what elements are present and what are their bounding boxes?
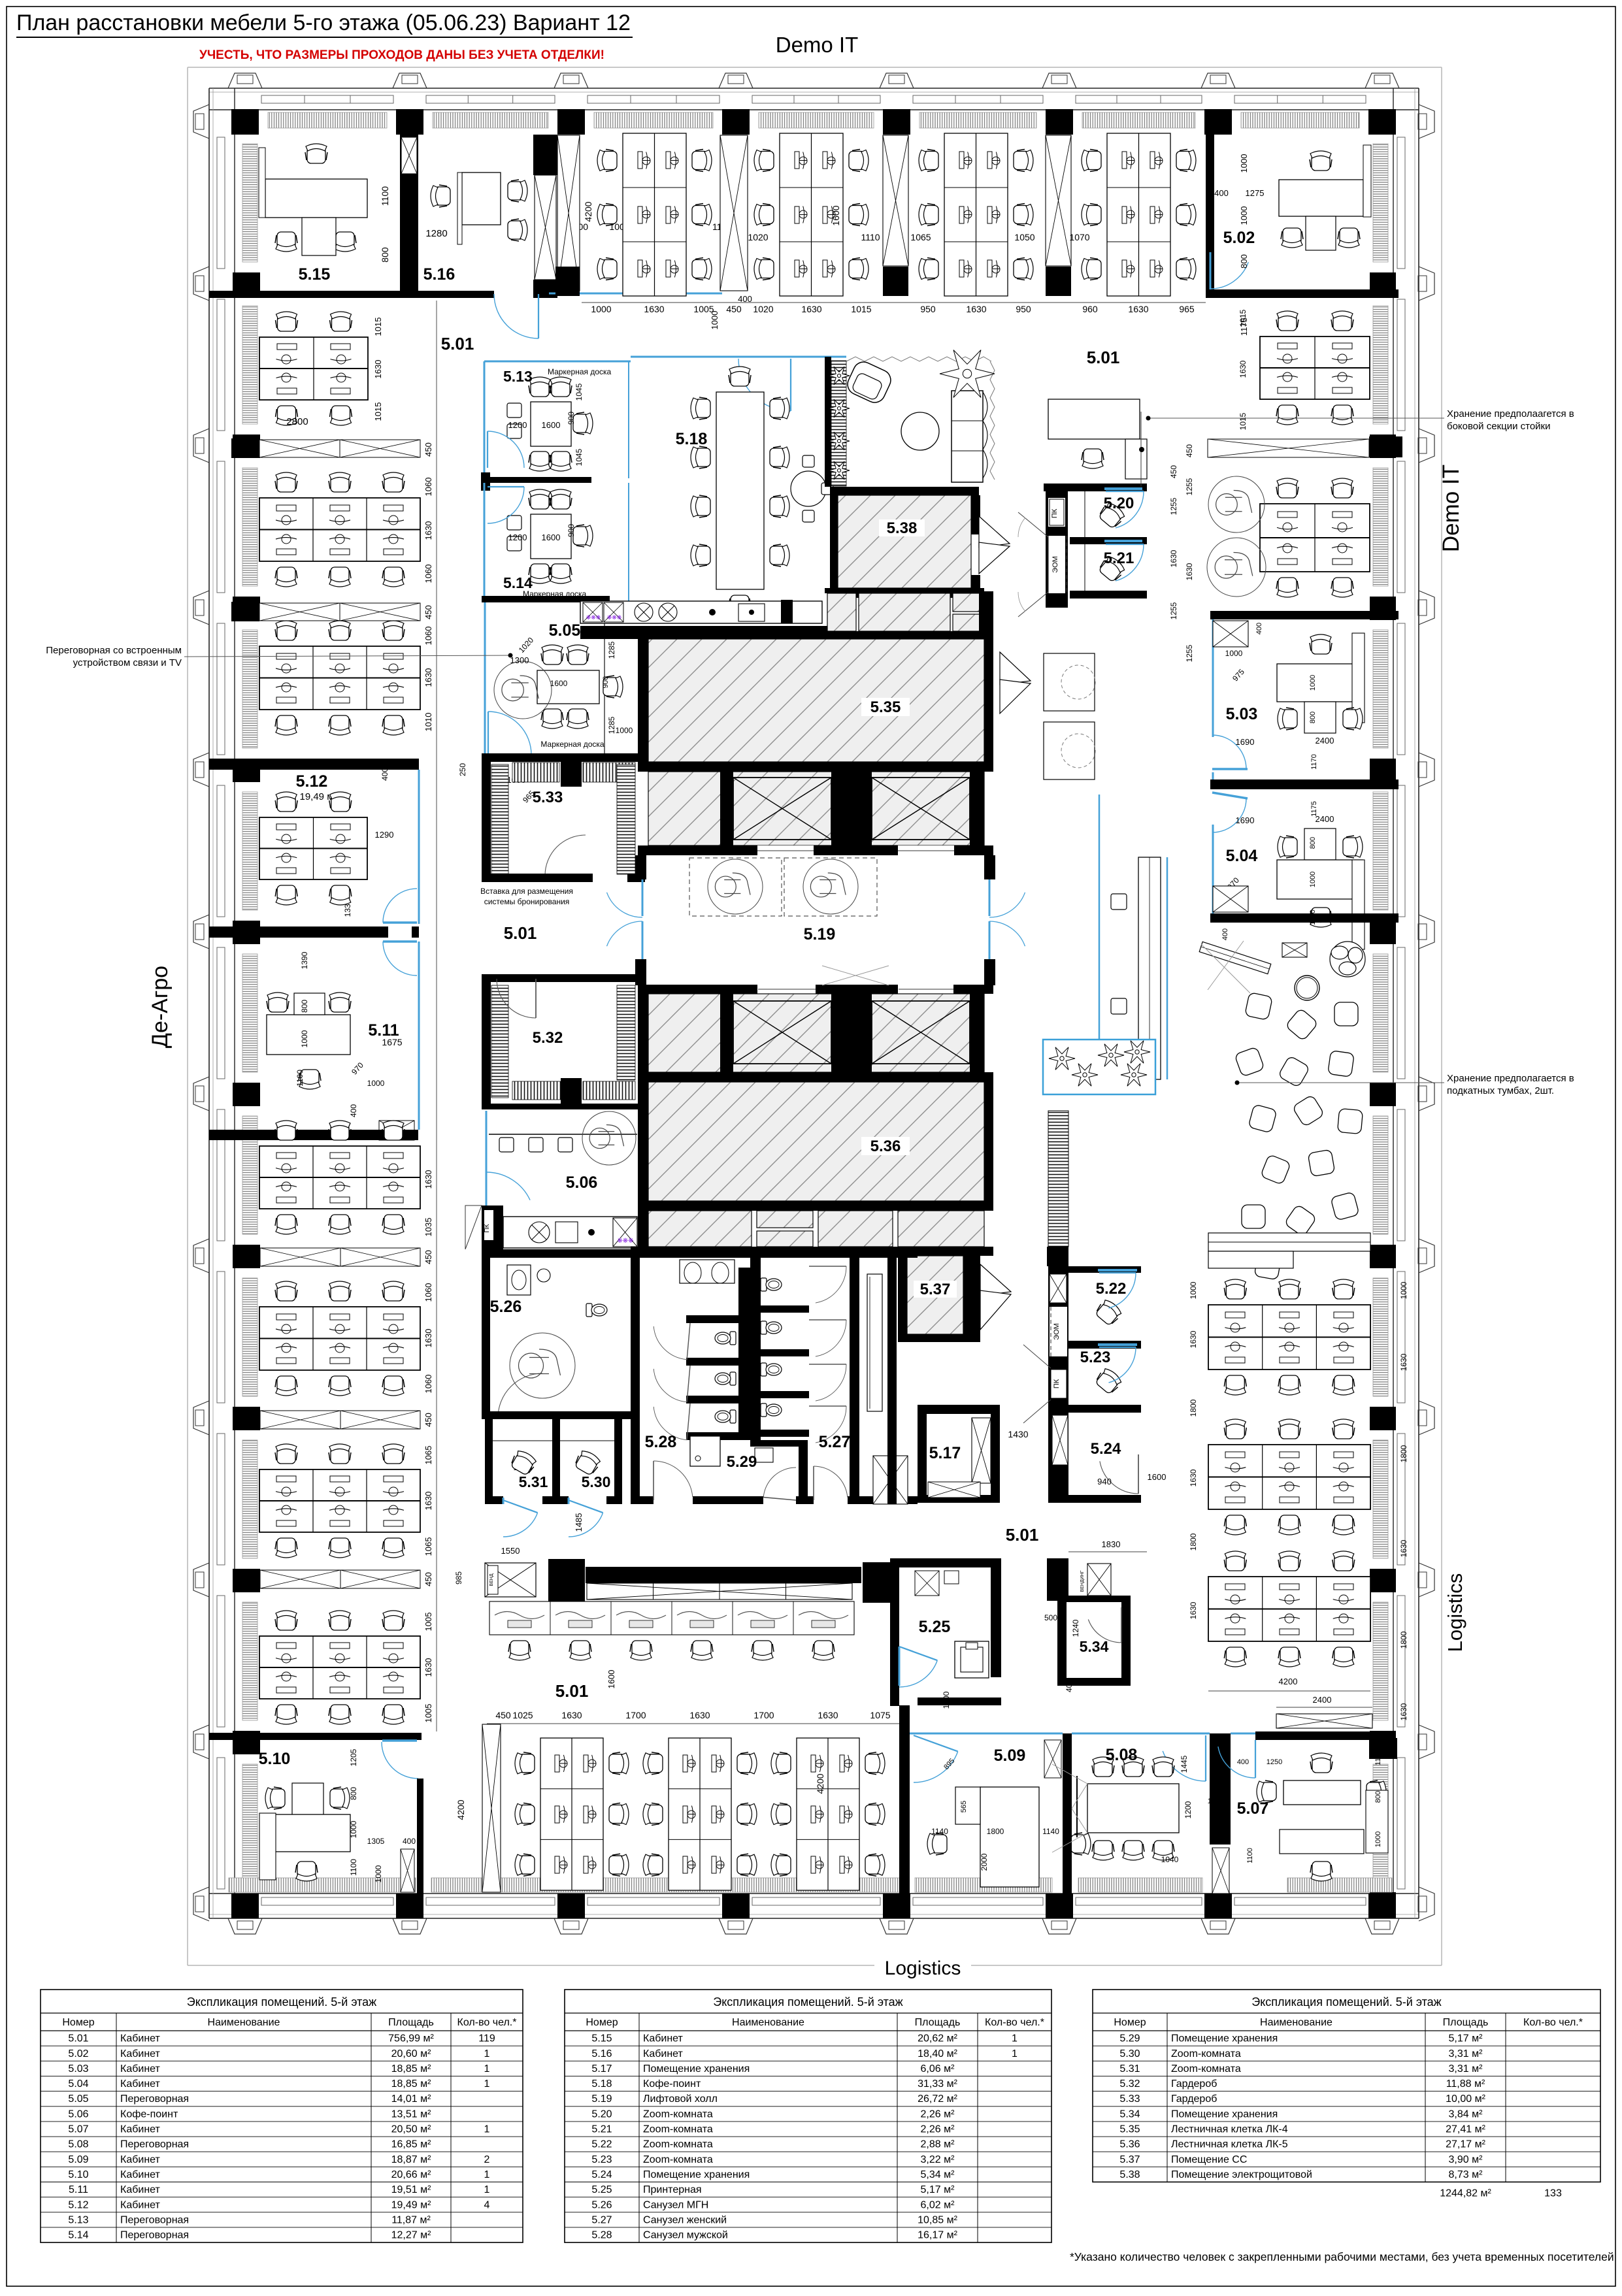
svg-text:1015: 1015 (1238, 309, 1248, 327)
svg-text:1800: 1800 (1399, 1445, 1408, 1462)
svg-text:5.04: 5.04 (68, 2078, 88, 2090)
svg-text:3,31 м²: 3,31 м² (1449, 2063, 1483, 2075)
svg-text:1630: 1630 (1399, 1353, 1408, 1371)
svg-text:1000: 1000 (1309, 675, 1317, 691)
svg-text:400: 400 (1065, 1679, 1074, 1692)
svg-text:1630: 1630 (1399, 1539, 1408, 1557)
svg-text:Кабинет: Кабинет (120, 2033, 161, 2044)
svg-text:Кабинет: Кабинет (120, 2048, 161, 2059)
svg-text:5.02: 5.02 (1223, 229, 1255, 247)
svg-text:Наименование: Наименование (208, 2017, 280, 2028)
svg-text:250: 250 (458, 763, 467, 776)
svg-text:5.30: 5.30 (1119, 2048, 1140, 2059)
svg-text:1015: 1015 (373, 318, 383, 336)
svg-text:950: 950 (1016, 304, 1031, 314)
svg-text:1045: 1045 (574, 383, 584, 401)
svg-text:5.26: 5.26 (591, 2199, 612, 2210)
svg-text:1630: 1630 (1399, 1703, 1408, 1720)
svg-text:1: 1 (1012, 2033, 1018, 2044)
svg-text:985: 985 (454, 1571, 463, 1584)
svg-text:1630: 1630 (1189, 1601, 1198, 1619)
svg-text:27,41 м²: 27,41 м² (1446, 2124, 1485, 2135)
svg-text:Demo IT: Demo IT (1438, 465, 1464, 552)
svg-text:1700: 1700 (753, 1710, 774, 1720)
svg-text:5.01: 5.01 (1087, 348, 1120, 367)
svg-text:5.01: 5.01 (68, 2033, 88, 2044)
svg-text:5.30: 5.30 (582, 1473, 611, 1490)
svg-text:800: 800 (300, 1000, 309, 1013)
svg-text:1015: 1015 (373, 402, 383, 421)
svg-text:1630: 1630 (1238, 360, 1248, 378)
svg-text:Кабинет: Кабинет (120, 2154, 161, 2165)
svg-text:Logistics: Logistics (885, 1958, 961, 1979)
svg-text:5.11: 5.11 (69, 2184, 88, 2195)
svg-text:1630: 1630 (1189, 1469, 1198, 1486)
svg-text:400: 400 (1237, 1758, 1249, 1766)
svg-text:Logistics: Logistics (1444, 1573, 1466, 1652)
svg-text:1690: 1690 (1236, 737, 1255, 747)
svg-text:965: 965 (1179, 304, 1195, 314)
svg-text:400: 400 (403, 1837, 416, 1846)
svg-text:Кол-во чел.*: Кол-во чел.* (985, 2017, 1044, 2028)
svg-text:5,34 м²: 5,34 м² (921, 2169, 955, 2180)
svg-text:1600: 1600 (1148, 1472, 1167, 1482)
svg-text:1000: 1000 (349, 1820, 358, 1838)
svg-text:1040: 1040 (1161, 1855, 1179, 1864)
svg-text:1000: 1000 (1239, 206, 1249, 225)
svg-text:10,85 м²: 10,85 м² (918, 2214, 957, 2225)
svg-text:5.08: 5.08 (1106, 1746, 1138, 1764)
svg-text:5.36: 5.36 (1119, 2139, 1140, 2150)
svg-text:900: 900 (567, 524, 576, 537)
svg-text:1020: 1020 (748, 232, 768, 242)
svg-text:756,99 м²: 756,99 м² (388, 2033, 434, 2044)
svg-text:5.12: 5.12 (68, 2199, 88, 2210)
svg-text:400: 400 (380, 768, 389, 781)
svg-text:1060: 1060 (423, 1283, 433, 1302)
svg-text:Гардероб: Гардероб (1171, 2078, 1217, 2090)
svg-text:20,60 м²: 20,60 м² (391, 2048, 431, 2059)
svg-text:450: 450 (423, 1413, 433, 1427)
svg-text:16,85 м²: 16,85 м² (391, 2139, 431, 2150)
svg-text:Площадь: Площадь (915, 2017, 961, 2028)
svg-text:1630: 1630 (423, 1492, 433, 1511)
svg-text:13,51 м²: 13,51 м² (391, 2108, 431, 2120)
svg-text:5.34: 5.34 (1119, 2108, 1140, 2120)
svg-text:1200: 1200 (508, 420, 527, 430)
svg-text:1100: 1100 (295, 1070, 305, 1087)
svg-text:устройством связи и TV: устройством связи и TV (73, 657, 182, 668)
svg-text:1244,82 м²: 1244,82 м² (1440, 2188, 1491, 2199)
svg-text:1600: 1600 (542, 420, 561, 430)
svg-text:Номер: Номер (586, 2017, 618, 2028)
svg-text:1070: 1070 (1069, 232, 1089, 242)
svg-text:Кабинет: Кабинет (643, 2048, 684, 2059)
svg-text:8,73 м²: 8,73 м² (1449, 2169, 1483, 2180)
svg-text:450: 450 (726, 304, 742, 314)
svg-text:5.21: 5.21 (1104, 549, 1134, 567)
svg-text:1830: 1830 (1102, 1539, 1121, 1549)
svg-text:Хранение предполаагется в: Хранение предполаагется в (1447, 408, 1574, 419)
svg-text:1100: 1100 (1246, 1848, 1254, 1863)
svg-text:5.06: 5.06 (68, 2108, 88, 2120)
svg-text:5.13: 5.13 (503, 368, 533, 385)
svg-text:5.20: 5.20 (1104, 495, 1134, 512)
svg-text:1630: 1630 (373, 360, 383, 379)
svg-text:1000: 1000 (1309, 872, 1317, 887)
svg-text:14,01 м²: 14,01 м² (391, 2093, 431, 2105)
svg-text:12,27 м²: 12,27 м² (391, 2230, 431, 2241)
svg-text:1600: 1600 (550, 679, 568, 688)
svg-text:ПК: ПК (1051, 508, 1059, 518)
svg-text:1010: 1010 (423, 713, 433, 732)
svg-text:1075: 1075 (870, 1710, 890, 1720)
svg-text:Zoom-комната: Zoom-комната (643, 2139, 713, 2150)
svg-text:ВЕНДИНГ: ВЕНДИНГ (1080, 1570, 1085, 1592)
svg-text:1065: 1065 (423, 1446, 433, 1465)
svg-text:1000: 1000 (591, 304, 611, 314)
svg-text:1: 1 (484, 2078, 490, 2090)
svg-text:1630: 1630 (966, 304, 986, 314)
svg-text:1000: 1000 (1239, 154, 1249, 173)
svg-text:Переговорная: Переговорная (120, 2093, 189, 2105)
svg-text:ПК: ПК (1053, 1379, 1061, 1388)
svg-text:1630: 1630 (1169, 549, 1178, 567)
svg-text:450: 450 (1169, 465, 1178, 478)
svg-text:1255: 1255 (1185, 644, 1194, 662)
svg-text:1200: 1200 (1183, 1801, 1193, 1818)
svg-text:565: 565 (960, 1801, 968, 1812)
svg-text:5.27: 5.27 (591, 2214, 612, 2225)
svg-text:Номер: Номер (1114, 2017, 1146, 2028)
svg-text:6,06 м²: 6,06 м² (921, 2063, 955, 2075)
svg-text:5.18: 5.18 (591, 2078, 612, 2090)
svg-text:Кофе-поинт: Кофе-поинт (643, 2078, 701, 2090)
svg-text:*Указано количество человек с: *Указано количество человек с закрепленн… (1070, 2250, 1614, 2263)
svg-text:19,51 м²: 19,51 м² (391, 2184, 431, 2195)
svg-text:боковой секции стойки: боковой секции стойки (1447, 421, 1550, 432)
svg-text:400: 400 (1214, 188, 1229, 198)
svg-text:5.19: 5.19 (804, 925, 836, 943)
svg-text:Помещение электрощитовой: Помещение электрощитовой (1171, 2169, 1312, 2180)
svg-text:5.20: 5.20 (591, 2108, 612, 2120)
svg-text:18,85 м²: 18,85 м² (391, 2063, 431, 2075)
svg-text:Zoom-комната: Zoom-комната (643, 2154, 713, 2165)
svg-text:5.02: 5.02 (68, 2048, 88, 2059)
svg-text:1035: 1035 (423, 1218, 433, 1237)
svg-text:1000: 1000 (374, 1865, 383, 1882)
svg-text:1: 1 (484, 2048, 490, 2059)
svg-text:Кабинет: Кабинет (120, 2124, 161, 2135)
svg-text:5,17 м²: 5,17 м² (921, 2184, 955, 2195)
svg-text:18,85 м²: 18,85 м² (391, 2078, 431, 2090)
svg-text:1285: 1285 (607, 641, 616, 659)
svg-text:1065: 1065 (910, 232, 931, 242)
svg-text:Кол-во чел.*: Кол-во чел.* (1523, 2017, 1583, 2028)
svg-text:2000: 2000 (980, 1853, 989, 1871)
svg-text:5.15: 5.15 (591, 2033, 612, 2044)
svg-text:1110: 1110 (861, 232, 880, 242)
svg-text:Кофе-поинт: Кофе-поинт (120, 2108, 178, 2120)
svg-text:1255: 1255 (1169, 602, 1178, 619)
svg-text:Помещение хранения: Помещение хранения (643, 2169, 750, 2180)
svg-text:1630: 1630 (423, 1170, 433, 1189)
svg-text:Де-Агро: Де-Агро (148, 966, 173, 1048)
svg-text:ЭОМ: ЭОМ (1051, 556, 1059, 573)
svg-text:Кабинет: Кабинет (120, 2169, 161, 2180)
svg-text:6,02 м²: 6,02 м² (921, 2199, 955, 2210)
svg-text:Площадь: Площадь (1443, 2017, 1489, 2028)
svg-text:3,84 м²: 3,84 м² (1449, 2108, 1483, 2120)
svg-text:План расстановки мебели 5-го э: План расстановки мебели 5-го этажа (05.0… (16, 10, 631, 35)
svg-text:4: 4 (484, 2199, 490, 2210)
svg-text:3,90 м²: 3,90 м² (1449, 2154, 1483, 2165)
svg-text:1015: 1015 (1238, 412, 1248, 430)
svg-text:1600: 1600 (606, 1670, 616, 1689)
svg-text:5.17: 5.17 (929, 1444, 961, 1462)
svg-text:5.34: 5.34 (1080, 1638, 1109, 1655)
svg-text:1045: 1045 (574, 448, 584, 466)
svg-text:1630: 1630 (423, 668, 433, 687)
svg-text:10,00 м²: 10,00 м² (1446, 2093, 1485, 2105)
svg-text:31,33 м²: 31,33 м² (918, 2078, 957, 2090)
svg-text:1275: 1275 (1246, 188, 1265, 198)
svg-text:800: 800 (349, 1787, 358, 1800)
svg-text:5.07: 5.07 (68, 2124, 88, 2135)
svg-text:5.06: 5.06 (566, 1173, 598, 1192)
svg-text:20,50 м²: 20,50 м² (391, 2124, 431, 2135)
svg-text:5.33: 5.33 (533, 789, 563, 806)
svg-text:❋❋❋: ❋❋❋ (586, 614, 601, 621)
svg-text:5.05: 5.05 (68, 2093, 88, 2105)
svg-text:Принтерная: Принтерная (643, 2184, 702, 2195)
svg-text:Кабинет: Кабинет (120, 2199, 161, 2210)
svg-text:Zoom-комната: Zoom-комната (643, 2108, 713, 2120)
svg-text:5.08: 5.08 (68, 2139, 88, 2150)
svg-text:Наименование: Наименование (732, 2017, 804, 2028)
svg-text:5.25: 5.25 (591, 2184, 612, 2195)
svg-text:500: 500 (1044, 1613, 1057, 1622)
svg-text:5.27: 5.27 (819, 1433, 851, 1451)
svg-text:1290: 1290 (375, 830, 394, 840)
svg-text:5.01: 5.01 (555, 1681, 589, 1701)
svg-text:1600: 1600 (831, 205, 841, 225)
svg-text:400: 400 (1221, 928, 1229, 940)
svg-text:5.23: 5.23 (591, 2154, 612, 2165)
svg-text:1005: 1005 (423, 1704, 433, 1723)
svg-text:1300: 1300 (510, 655, 529, 665)
svg-text:Переговорная: Переговорная (120, 2214, 189, 2225)
svg-text:940: 940 (1097, 1477, 1112, 1486)
svg-text:1: 1 (484, 2063, 490, 2075)
svg-text:Площадь: Площадь (388, 2017, 434, 2028)
svg-text:Zoom-комната: Zoom-комната (1171, 2063, 1241, 2075)
svg-text:5.38: 5.38 (1119, 2169, 1140, 2180)
svg-text:1630: 1630 (1128, 304, 1148, 314)
svg-text:450: 450 (423, 1250, 433, 1264)
svg-text:5.24: 5.24 (1091, 1440, 1121, 1458)
svg-text:5.33: 5.33 (1119, 2093, 1140, 2105)
svg-text:16,17 м²: 16,17 м² (918, 2230, 957, 2241)
svg-text:❋❋❋: ❋❋❋ (607, 614, 622, 621)
svg-text:5.32: 5.32 (533, 1029, 563, 1047)
svg-text:1255: 1255 (1185, 478, 1194, 495)
svg-text:Demo IT: Demo IT (776, 33, 859, 57)
svg-text:1040: 1040 (1208, 1797, 1223, 1805)
svg-text:Zoom-комната: Zoom-комната (1171, 2048, 1241, 2059)
svg-text:800: 800 (1309, 837, 1317, 849)
svg-text:Помещение хранения: Помещение хранения (643, 2063, 750, 2075)
svg-text:Экспликация помещений. 5-й эта: Экспликация помещений. 5-й этаж (187, 1995, 376, 2009)
svg-text:1675: 1675 (382, 1037, 402, 1047)
svg-text:1630: 1630 (423, 521, 433, 540)
svg-text:2800: 2800 (286, 416, 308, 427)
svg-text:1205: 1205 (349, 1748, 358, 1766)
svg-text:1630: 1630 (561, 1710, 582, 1720)
svg-text:5.25: 5.25 (919, 1618, 951, 1636)
svg-text:2,88 м²: 2,88 м² (921, 2139, 955, 2150)
svg-text:11,88 м²: 11,88 м² (1446, 2078, 1485, 2090)
svg-text:1630: 1630 (423, 1658, 433, 1677)
svg-text:450: 450 (423, 442, 433, 457)
svg-text:1000: 1000 (367, 1079, 385, 1088)
svg-text:20,62 м²: 20,62 м² (918, 2033, 957, 2044)
svg-text:2,26 м²: 2,26 м² (921, 2108, 955, 2120)
svg-text:1170: 1170 (1310, 754, 1318, 770)
svg-text:5.01: 5.01 (504, 923, 537, 943)
svg-text:1000: 1000 (1399, 1281, 1408, 1299)
svg-text:5.04: 5.04 (1226, 847, 1258, 865)
svg-text:Zoom-комната: Zoom-комната (643, 2124, 713, 2135)
svg-text:Маркерная доска: Маркерная доска (540, 740, 604, 749)
svg-text:Лестничная клетка ЛК-5: Лестничная клетка ЛК-5 (1171, 2139, 1288, 2150)
svg-text:1280: 1280 (425, 228, 447, 239)
svg-text:5.28: 5.28 (645, 1433, 677, 1451)
svg-text:5.03: 5.03 (68, 2063, 88, 2075)
svg-text:1800: 1800 (1189, 1399, 1198, 1417)
svg-text:18,40 м²: 18,40 м² (918, 2048, 957, 2059)
svg-text:1005: 1005 (693, 304, 714, 314)
svg-text:1000: 1000 (300, 1030, 309, 1047)
svg-text:5.29: 5.29 (727, 1453, 757, 1471)
svg-text:1000: 1000 (1189, 1281, 1198, 1299)
svg-text:5.26: 5.26 (490, 1298, 522, 1316)
svg-text:5.24: 5.24 (591, 2169, 612, 2180)
svg-text:Экспликация помещений. 5-й эта: Экспликация помещений. 5-й этаж (1251, 1995, 1441, 2009)
svg-text:5.18: 5.18 (676, 430, 708, 448)
svg-text:5.35: 5.35 (1119, 2124, 1140, 2135)
svg-text:1050: 1050 (1014, 232, 1034, 242)
svg-text:119: 119 (478, 2033, 495, 2044)
svg-text:900: 900 (567, 412, 576, 425)
svg-text:Кабинет: Кабинет (120, 2063, 161, 2075)
svg-text:Санузел МГН: Санузел МГН (643, 2199, 708, 2210)
svg-text:Переговорная со встроенным: Переговорная со встроенным (46, 645, 182, 656)
svg-text:5.38: 5.38 (887, 519, 918, 537)
svg-text:1140: 1140 (1042, 1827, 1059, 1836)
svg-text:1800: 1800 (1189, 1533, 1198, 1550)
svg-text:5.03: 5.03 (1226, 705, 1258, 723)
svg-text:подкатных тумбах, 2шт.: подкатных тумбах, 2шт. (1447, 1085, 1554, 1096)
svg-text:5.35: 5.35 (870, 698, 901, 716)
svg-text:5.32: 5.32 (1119, 2078, 1140, 2090)
svg-text:5.36: 5.36 (870, 1138, 901, 1155)
svg-text:19,49 м²: 19,49 м² (391, 2199, 431, 2210)
svg-text:5.14: 5.14 (68, 2230, 88, 2241)
svg-text:400: 400 (1255, 623, 1263, 634)
svg-text:400: 400 (349, 1104, 358, 1117)
svg-text:1060: 1060 (423, 1375, 433, 1394)
svg-text:Лифтовой холл: Лифтовой холл (643, 2093, 718, 2105)
svg-text:5.16: 5.16 (591, 2048, 612, 2059)
svg-text:1630: 1630 (644, 304, 664, 314)
svg-text:5.05: 5.05 (549, 621, 581, 640)
svg-text:1200: 1200 (508, 533, 527, 542)
svg-text:800: 800 (380, 247, 390, 263)
svg-text:1305: 1305 (367, 1837, 385, 1846)
svg-text:1: 1 (1012, 2048, 1018, 2059)
svg-text:5.17: 5.17 (591, 2063, 612, 2075)
svg-text:Маркерная доска: Маркерная доска (548, 367, 612, 376)
svg-text:1700: 1700 (625, 1710, 646, 1720)
svg-text:1060: 1060 (423, 478, 433, 497)
svg-text:5.29: 5.29 (1119, 2033, 1140, 2044)
svg-text:1445: 1445 (1180, 1755, 1189, 1773)
svg-text:1060: 1060 (423, 627, 433, 646)
svg-text:450: 450 (495, 1710, 511, 1720)
svg-text:Вставка для размещения: Вставка для размещения (480, 887, 573, 896)
svg-text:4200: 4200 (583, 201, 593, 221)
svg-text:Номер: Номер (62, 2017, 94, 2028)
svg-text:1020: 1020 (753, 304, 773, 314)
svg-text:5.28: 5.28 (591, 2230, 612, 2241)
svg-text:ВЕНД: ВЕНД (489, 1573, 494, 1586)
svg-text:Санузел мужской: Санузел мужской (643, 2230, 728, 2241)
svg-text:1800: 1800 (987, 1827, 1004, 1836)
svg-text:1065: 1065 (423, 1537, 433, 1556)
svg-text:5.16: 5.16 (423, 265, 455, 284)
svg-text:4200: 4200 (815, 1773, 825, 1794)
svg-text:системы бронирования: системы бронирования (484, 897, 570, 906)
svg-text:5.01: 5.01 (441, 334, 474, 353)
svg-text:1025: 1025 (512, 1710, 533, 1720)
svg-text:5.31: 5.31 (519, 1473, 548, 1490)
svg-text:5.15: 5.15 (299, 265, 331, 284)
svg-text:5.22: 5.22 (591, 2139, 612, 2150)
svg-text:Помещение хранения: Помещение хранения (1171, 2108, 1278, 2120)
svg-text:1000: 1000 (1374, 1831, 1382, 1847)
svg-text:1690: 1690 (1236, 815, 1255, 825)
svg-text:5.07: 5.07 (1237, 1799, 1269, 1818)
svg-text:1630: 1630 (689, 1710, 710, 1720)
svg-text:1550: 1550 (501, 1546, 520, 1556)
svg-text:1175: 1175 (1310, 801, 1318, 817)
svg-text:Помещение хранения: Помещение хранения (1171, 2033, 1278, 2044)
svg-text:5.13: 5.13 (68, 2214, 88, 2225)
svg-text:1485: 1485 (574, 1513, 584, 1532)
svg-text:Кабинет: Кабинет (643, 2033, 684, 2044)
svg-text:1255: 1255 (1169, 497, 1178, 515)
svg-text:5.09: 5.09 (994, 1747, 1026, 1765)
svg-text:Санузел женский: Санузел женский (643, 2214, 727, 2225)
svg-text:Помещение СС: Помещение СС (1171, 2154, 1247, 2165)
svg-text:950: 950 (920, 304, 936, 314)
svg-text:2400: 2400 (1316, 736, 1334, 746)
svg-text:5.23: 5.23 (1080, 1349, 1111, 1366)
svg-text:5.21: 5.21 (591, 2124, 612, 2135)
svg-text:Кабинет: Кабинет (120, 2184, 161, 2195)
svg-text:❋❋❋: ❋❋❋ (617, 1238, 633, 1245)
